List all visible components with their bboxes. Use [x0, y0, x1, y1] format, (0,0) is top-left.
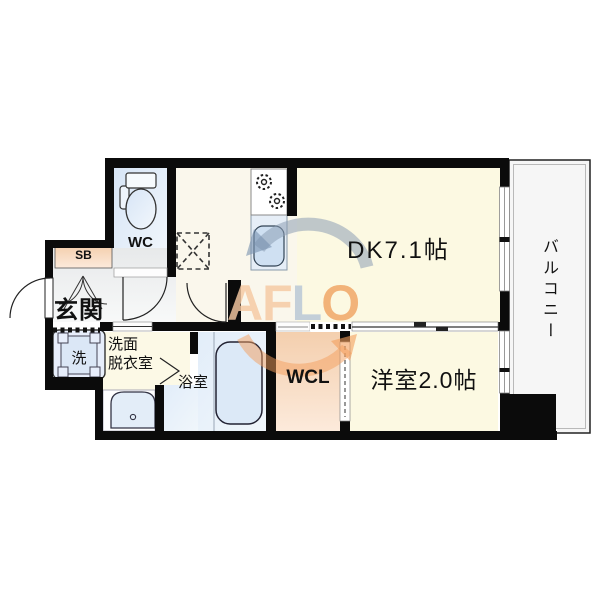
- wall-basin-west: [95, 385, 103, 435]
- walk-in-closet-label: WCL: [276, 367, 340, 389]
- wall-step: [45, 377, 103, 390]
- dashed-wall-segment: [310, 322, 352, 331]
- wall-wc-west: [105, 158, 114, 248]
- stove-unit: [251, 169, 287, 215]
- western-room-balcony-window: [500, 331, 510, 393]
- dk-balcony-window: [500, 187, 510, 291]
- washroom-label-line2: 脱衣室: [108, 355, 153, 372]
- entrance-door-swing: [10, 278, 50, 318]
- dining-kitchen-label: DK7.1帖: [297, 230, 500, 265]
- washroom-label: 洗面脱衣室: [108, 335, 153, 373]
- wall-kitchen-stub: [287, 158, 297, 216]
- entrance-label: 玄関: [54, 290, 104, 325]
- wall-bath-west-upper: [190, 332, 198, 354]
- wall-basin-east: [155, 385, 164, 431]
- wall-wc-east: [167, 158, 176, 277]
- wash-basin: [111, 392, 155, 428]
- washroom-label-line1: 洗面: [108, 336, 138, 353]
- wall-top: [105, 158, 509, 168]
- wall-left-upper: [45, 248, 53, 278]
- wall-wcl-door-bottom-stub: [340, 421, 350, 431]
- wall-left-mid: [45, 318, 53, 385]
- entrance-door: [45, 278, 53, 318]
- balcony-label: バルコニー: [536, 238, 560, 343]
- wall-sb-top: [45, 240, 114, 248]
- dk-western-sliding-door: [352, 322, 498, 331]
- washing-machine-label: 洗: [53, 347, 105, 368]
- wc-door: [114, 268, 167, 277]
- floor-plan: WC SB 玄関 洗 洗面脱衣室 浴室 WCL DK7.1帖 洋室2.0帖 バル…: [0, 0, 600, 600]
- shoe-box-label: SB: [55, 248, 112, 262]
- wc-label: WC: [114, 234, 167, 251]
- wall-balcony-block: [509, 394, 556, 440]
- wcl-top-opening: [276, 322, 310, 331]
- wall-bottom: [95, 431, 557, 440]
- bathroom-label: 浴室: [178, 371, 208, 392]
- wall-divider-b: [152, 322, 276, 331]
- wall-wcl-west: [266, 322, 276, 440]
- western-room-label: 洋室2.0帖: [348, 361, 500, 395]
- washroom-door: [113, 322, 152, 331]
- wall-divider-c: [498, 322, 509, 331]
